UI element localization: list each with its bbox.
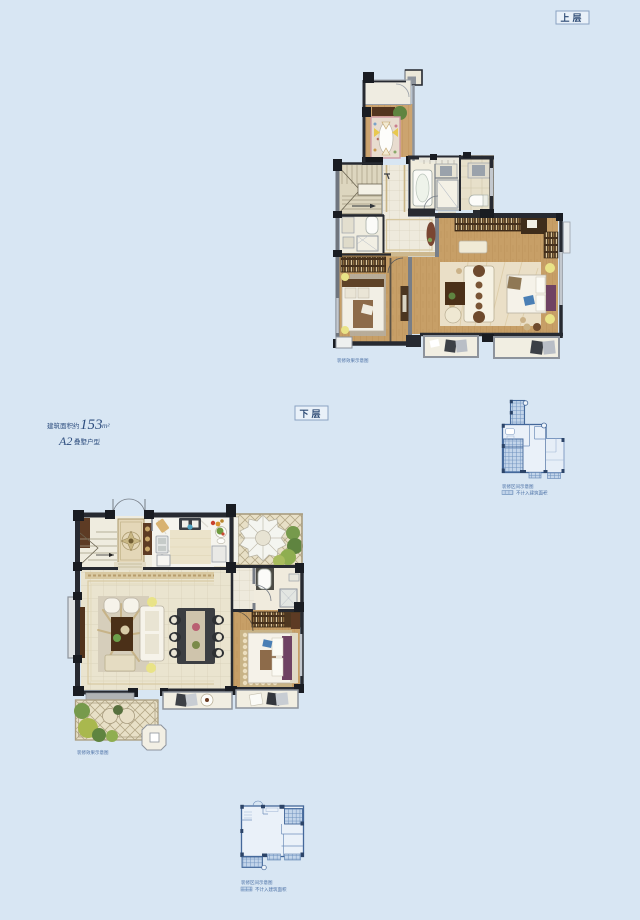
svg-text:不计入建筑面积: 不计入建筑面积 [255, 886, 287, 893]
svg-text:不计入建筑面积: 不计入建筑面积 [516, 490, 548, 497]
svg-text:装修效果示意图: 装修效果示意图 [337, 357, 369, 364]
svg-text:m²: m² [102, 423, 110, 430]
svg-text:叠墅户型: 叠墅户型 [74, 437, 101, 446]
svg-text:建筑面积约: 建筑面积约 [47, 421, 80, 430]
svg-text:装修效果示意图: 装修效果示意图 [77, 749, 109, 756]
svg-text:A2: A2 [58, 434, 72, 448]
svg-text:下层: 下层 [299, 409, 323, 419]
svg-text:上层: 上层 [560, 12, 584, 23]
svg-text:装修区间示意图: 装修区间示意图 [502, 483, 534, 490]
svg-text:153: 153 [80, 417, 103, 433]
svg-text:装修区间示意图: 装修区间示意图 [241, 879, 273, 886]
